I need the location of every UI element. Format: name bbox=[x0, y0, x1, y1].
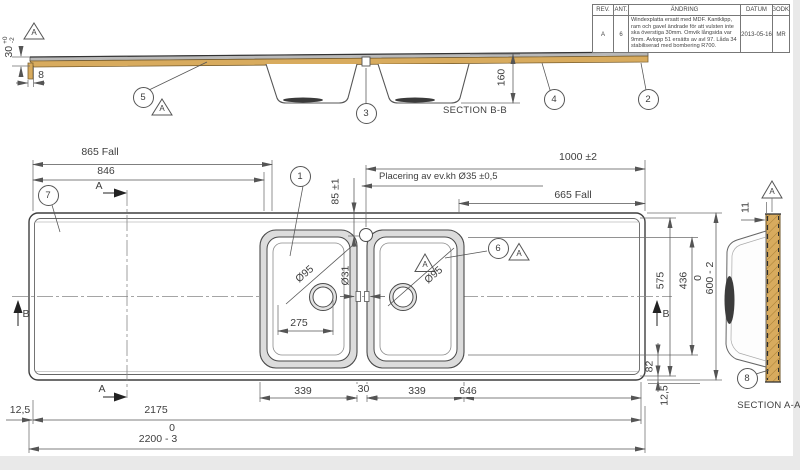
rev-cell-ant: 6 bbox=[614, 16, 629, 53]
rev-header-rev: REV. bbox=[593, 5, 614, 16]
dim-lip-8: 8 bbox=[34, 70, 48, 81]
dim-125-right: 12,5 bbox=[659, 381, 670, 411]
rev-header-ant: ANT. bbox=[614, 5, 629, 16]
dim-665-fall: 665 Fall bbox=[538, 190, 608, 201]
revision-table: REV. ANT. ÄNDRING DATUM GODK. A 6 Windex… bbox=[592, 4, 790, 53]
dim-bowl-depth-160: 160 bbox=[496, 60, 507, 96]
dim-436: 436 bbox=[678, 263, 689, 299]
datum-a-section-bb: A bbox=[28, 28, 40, 39]
dim-339-right: 339 bbox=[395, 386, 439, 397]
balloon-8: 8 bbox=[737, 368, 758, 389]
dim-125-left: 12,5 bbox=[6, 405, 34, 416]
rev-header-andring: ÄNDRING bbox=[629, 5, 741, 16]
dim-865-fall: 865 Fall bbox=[65, 147, 135, 158]
rev-header-godk: GODK. bbox=[773, 5, 789, 16]
balloon-2: 2 bbox=[638, 89, 659, 110]
balloon-6: 6 bbox=[488, 238, 509, 259]
dim-339-left: 339 bbox=[281, 386, 325, 397]
balloon-1: 1 bbox=[290, 166, 311, 187]
cut-arrow-a-top: A bbox=[92, 180, 106, 192]
section-aa-geometry bbox=[725, 181, 783, 382]
balloon-4: 4 bbox=[544, 89, 565, 110]
datum-a-section-aa: A bbox=[766, 187, 778, 198]
dim-1000: 1000 ±2 bbox=[542, 152, 614, 163]
balloon-3: 3 bbox=[356, 103, 377, 124]
dim-85: 85 ±1 bbox=[330, 171, 341, 213]
dim-2175: 2175 bbox=[133, 405, 179, 416]
dim-overflow-dia-31: Ø31 bbox=[340, 261, 351, 291]
rev-cell-datum: 2013-05-16 bbox=[741, 16, 773, 53]
dim-82: 82 bbox=[644, 354, 655, 380]
dim-600: 0600 - 2 bbox=[693, 251, 717, 305]
tap-hole-note: Placering av ev.kh Ø35 ±0,5 bbox=[379, 172, 547, 182]
balloon-7: 7 bbox=[38, 185, 59, 206]
dim-2200: 2200 - 3 bbox=[129, 434, 187, 445]
rev-header-datum: DATUM bbox=[741, 5, 773, 16]
dim-11: 11 bbox=[740, 196, 751, 220]
section-aa-label: SECTION A-A bbox=[737, 401, 800, 411]
drawing-sheet: REV. ANT. ÄNDRING DATUM GODK. A 6 Windex… bbox=[0, 0, 800, 470]
cut-arrow-b-right: B bbox=[659, 308, 673, 320]
rev-cell-rev: A bbox=[593, 16, 614, 53]
dim-thickness-30: 30 +0-2 bbox=[3, 25, 17, 69]
cut-arrow-b-left: B bbox=[19, 308, 33, 320]
dim-646: 646 bbox=[446, 386, 490, 397]
section-bb-label: SECTION B-B bbox=[437, 106, 513, 116]
dim-30-gap: 30 bbox=[349, 384, 378, 395]
balloon-5: 5 bbox=[133, 87, 154, 108]
page-margin-bottom bbox=[0, 456, 793, 470]
rev-cell-andring: Windexplatta ersatt med MDF. Kantklipp, … bbox=[629, 16, 741, 53]
cut-arrow-a-bottom: A bbox=[95, 383, 109, 395]
drawing-linework bbox=[0, 0, 800, 470]
rev-cell-godk: MR bbox=[773, 16, 789, 53]
dim-846: 846 bbox=[76, 166, 136, 177]
datum-a-balloon5: A bbox=[156, 104, 168, 115]
plan-view-geometry bbox=[12, 190, 672, 398]
datum-a-right-bowl: A bbox=[419, 260, 431, 271]
dim-275: 275 bbox=[277, 318, 321, 329]
dim-575: 575 bbox=[655, 263, 666, 299]
datum-a-balloon6: A bbox=[513, 249, 525, 260]
